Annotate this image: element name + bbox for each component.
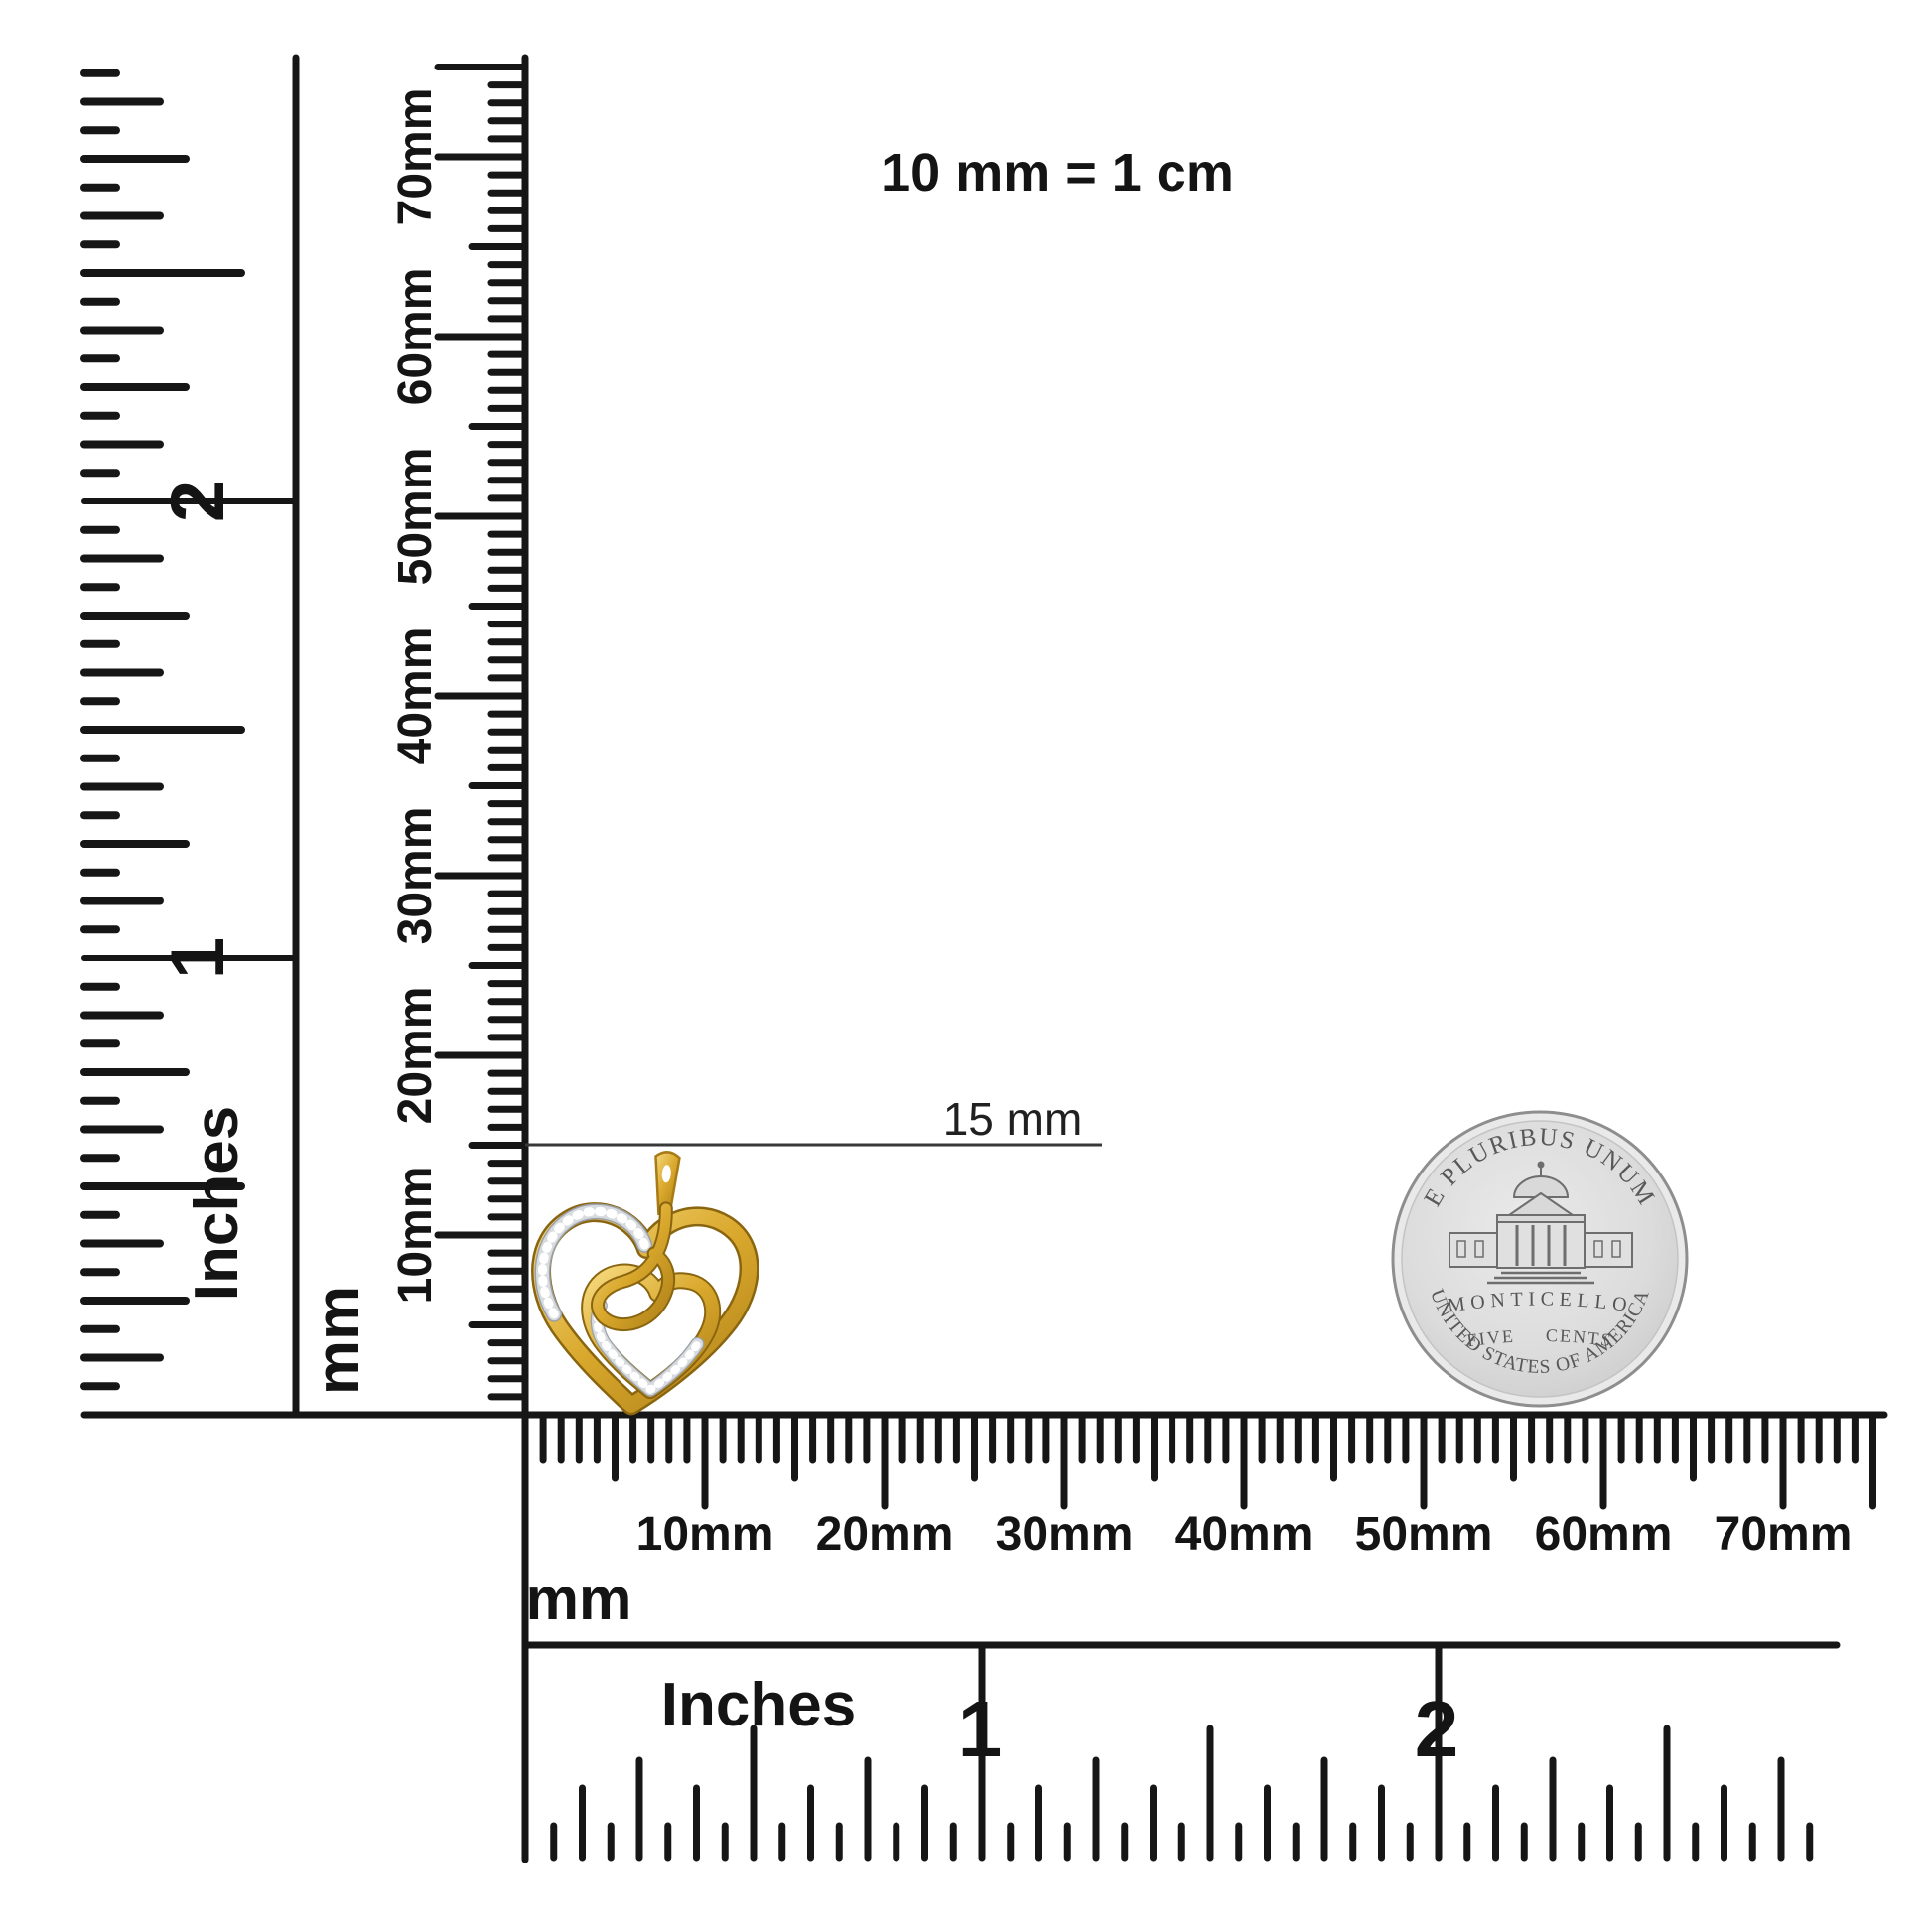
scene-svg: E PLURIBUS UNUM MONTICELLO FIVE CENTS UN… bbox=[0, 0, 1932, 1932]
inch-numeral-label: 2 bbox=[1415, 1690, 1459, 1769]
mm-tick-label: 60mm bbox=[1535, 1511, 1673, 1559]
mm-tick-label: 50mm bbox=[392, 448, 440, 586]
scale-note: 10 mm = 1 cm bbox=[881, 146, 1234, 200]
size-reference-diagram: E PLURIBUS UNUM MONTICELLO FIVE CENTS UN… bbox=[0, 0, 1932, 1932]
inch-numeral-label: 2 bbox=[161, 481, 236, 522]
mm-tick-label: 30mm bbox=[392, 807, 440, 945]
vertical-mm-ruler bbox=[438, 58, 525, 1860]
unit-label-inches-left: Inches bbox=[187, 1106, 248, 1301]
inch-numeral-label: 1 bbox=[161, 937, 236, 979]
mm-tick-label: 20mm bbox=[392, 987, 440, 1125]
nickel-coin: E PLURIBUS UNUM MONTICELLO FIVE CENTS UN… bbox=[1393, 1112, 1687, 1406]
mm-tick-label: 20mm bbox=[816, 1511, 954, 1559]
mm-tick-label: 60mm bbox=[392, 268, 440, 406]
mm-tick-label: 70mm bbox=[1715, 1511, 1853, 1559]
mm-tick-label: 50mm bbox=[1355, 1511, 1493, 1559]
heart-pendant bbox=[532, 1144, 758, 1413]
mm-tick-label: 30mm bbox=[996, 1511, 1134, 1559]
mm-tick-label: 10mm bbox=[392, 1167, 440, 1305]
mm-tick-label: 70mm bbox=[392, 88, 440, 226]
inch-numeral-label: 1 bbox=[958, 1690, 1003, 1769]
mm-tick-label: 10mm bbox=[636, 1511, 774, 1559]
mm-tick-label: 40mm bbox=[392, 627, 440, 765]
unit-label-inches-bottom: Inches bbox=[661, 1675, 856, 1736]
mm-tick-label: 40mm bbox=[1175, 1511, 1313, 1559]
horizontal-mm-ruler bbox=[84, 1415, 1884, 1506]
measurement-label: 15 mm bbox=[943, 1096, 1083, 1142]
unit-label-mm-left: mm bbox=[308, 1286, 369, 1395]
unit-label-mm-bottom: mm bbox=[526, 1570, 632, 1629]
